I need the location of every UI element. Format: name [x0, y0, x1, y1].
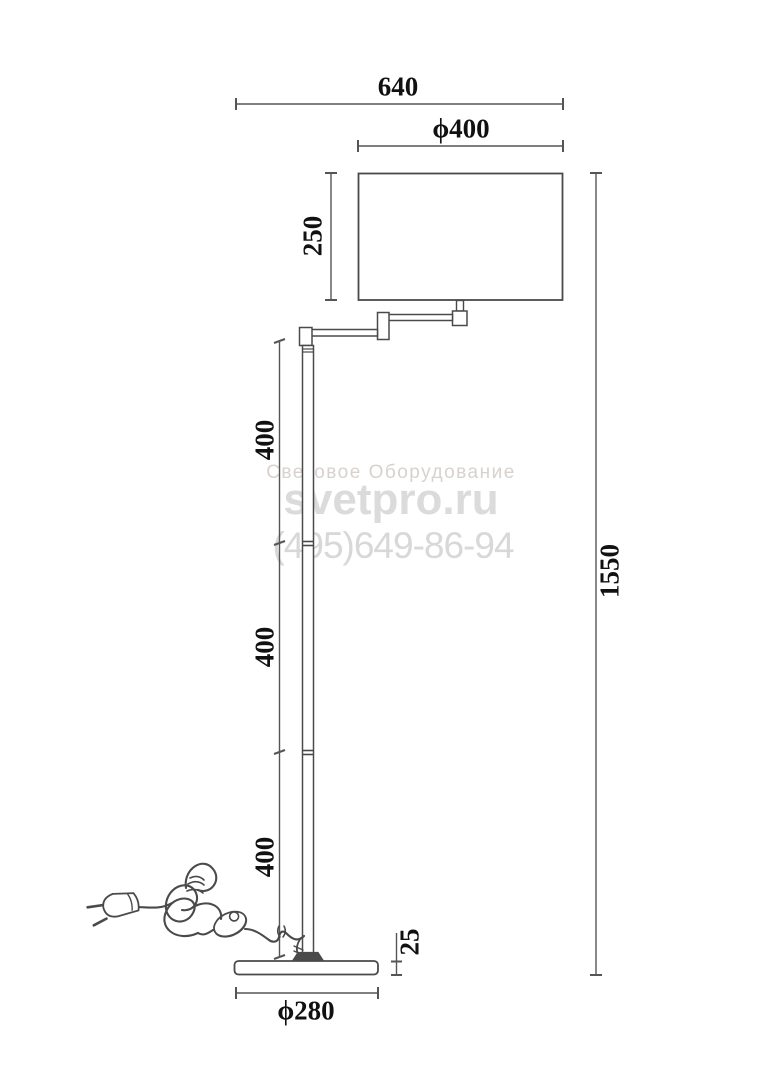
lamp-dimension-diagram: Световое Оборудование svetpro.ru (495)64…: [0, 0, 763, 1080]
dim-base-diameter-line: [236, 987, 378, 999]
dim-shade-height-line: [325, 173, 337, 300]
power-plug: [86, 888, 141, 926]
swing-arm-joint-middle: [378, 313, 390, 340]
cord-coil: [164, 864, 221, 936]
swing-arm-lower-bar: [311, 330, 378, 337]
power-cord: [245, 929, 304, 942]
swing-arm-joint-right: [453, 311, 468, 326]
power-cord-assembly: [86, 864, 304, 959]
lamp-pole: [303, 346, 314, 962]
floor-lamp-line-drawing: [0, 0, 763, 1080]
dim-shade-diameter-line: [358, 140, 563, 152]
lamp-body: [235, 174, 563, 975]
swing-arm-joint-pole: [300, 328, 313, 346]
lamp-base: [235, 961, 379, 975]
lamp-shade: [359, 174, 563, 301]
dim-overall-height-line: [590, 173, 602, 975]
shade-stem: [457, 301, 464, 312]
swing-arm-upper-bar: [389, 315, 453, 321]
inline-foot-switch: [210, 907, 250, 942]
dim-base-height-line: [391, 933, 402, 975]
dim-pole-segments-line: [274, 339, 285, 959]
swing-arm: [300, 311, 468, 346]
dim-overall-width-line: [236, 98, 563, 110]
